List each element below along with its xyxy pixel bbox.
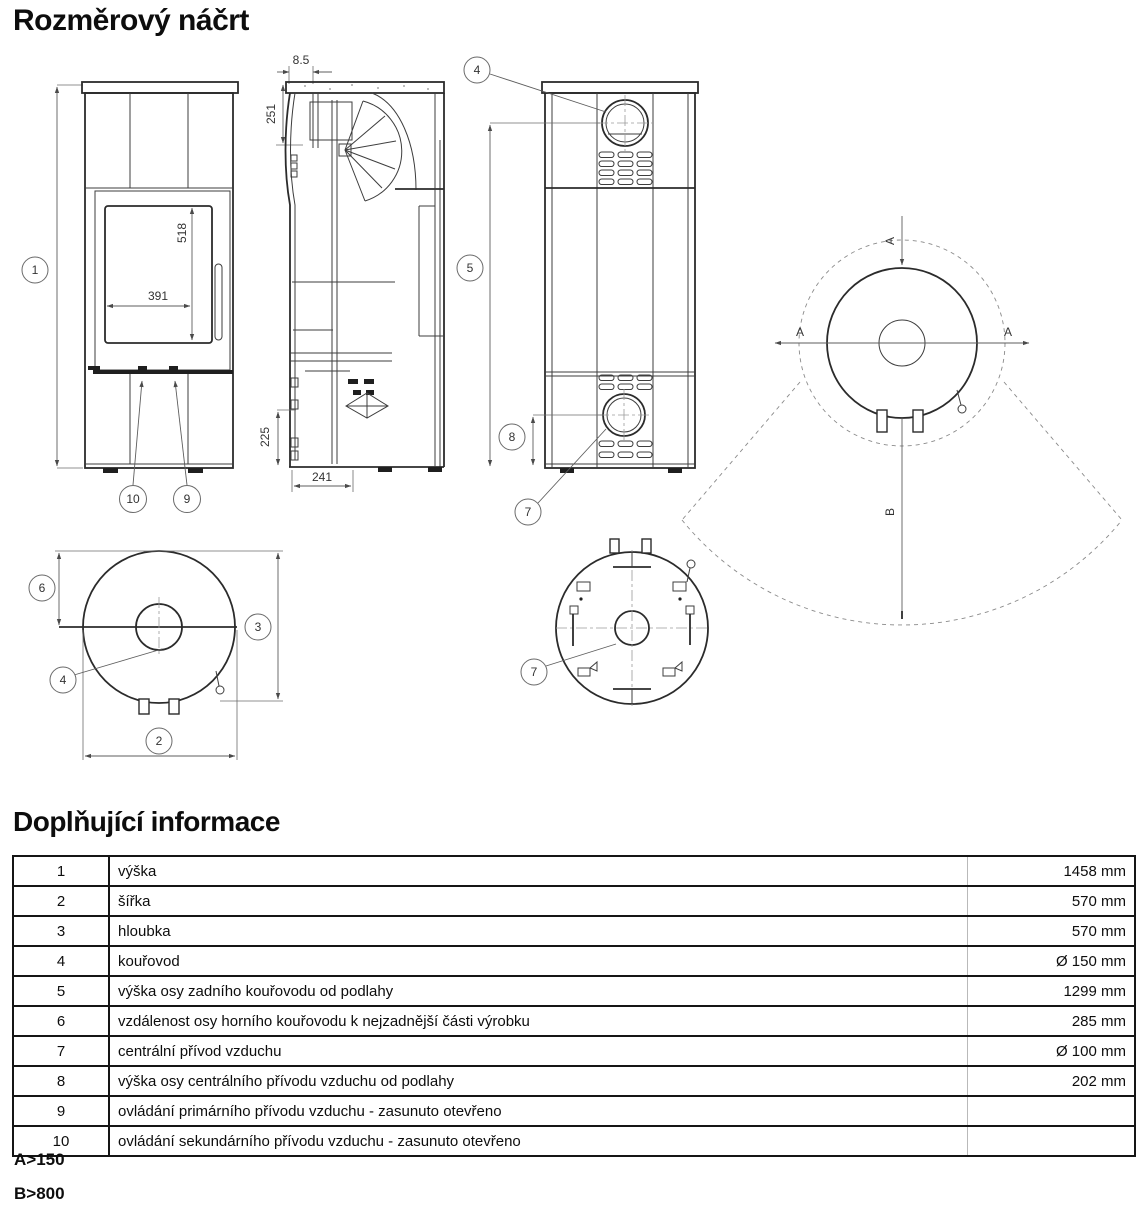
balloon-6: 6 [29, 575, 55, 601]
row-label-cell: výška [109, 856, 968, 886]
table-row: 1 výška 1458 mm [13, 856, 1135, 886]
balloon-5-label: 5 [467, 261, 474, 275]
balloon-8: 8 [499, 424, 525, 450]
dim-glass-width: 391 [148, 289, 168, 303]
row-number-cell: 9 [13, 1096, 109, 1126]
row-value-cell: Ø 150 mm [968, 946, 1136, 976]
row-value-cell: 1458 mm [968, 856, 1136, 886]
row-value-cell: 570 mm [968, 916, 1136, 946]
balloon-4-label: 4 [474, 63, 481, 77]
dim-plate-offset: 8.5 [293, 53, 310, 67]
door-handle-top [958, 405, 966, 413]
info-heading: Doplňující informace [13, 806, 280, 838]
info-table: 1 výška 1458 mm 2 šířka 570 mm 3 hloubka… [12, 855, 1136, 1157]
table-row: 4 kouřovod Ø 150 mm [13, 946, 1135, 976]
row-label-cell: výška osy zadního kouřovodu od podlahy [109, 976, 968, 1006]
row-number-cell: 1 [13, 856, 109, 886]
table-row: 8 výška osy centrálního přívodu vzduchu … [13, 1066, 1135, 1096]
stove-foot [913, 410, 923, 432]
table-row: 5 výška osy zadního kouřovodu od podlahy… [13, 976, 1135, 1006]
top-view: 6 3 2 4 [29, 551, 283, 760]
row-label-cell: ovládání sekundárního přívodu vzduchu - … [109, 1126, 968, 1156]
door-handle-top [216, 686, 224, 694]
rear-vent-grid-bottom [599, 441, 652, 458]
row-number-cell: 2 [13, 886, 109, 916]
balloon-1-label: 1 [32, 263, 39, 277]
row-value-cell: Ø 100 mm [968, 1036, 1136, 1066]
balloon-10: 10 [120, 486, 147, 513]
row-value-cell [968, 1096, 1136, 1126]
row-label-cell: kouřovod [109, 946, 968, 976]
rear-vent-grid-top [599, 152, 652, 185]
clearance-a-left: A [796, 325, 804, 339]
central-air-inlet [598, 389, 650, 441]
door-handle-bottom [687, 560, 695, 568]
table-row: 2 šířka 570 mm [13, 886, 1135, 916]
table-row: 6 vzdálenost osy horního kouřovodu k nej… [13, 1006, 1135, 1036]
balloon-7-bottom-view: 7 [521, 659, 547, 685]
stove-foot [877, 410, 887, 432]
door-glass [105, 206, 212, 343]
dimensional-drawing: 1 518 391 [0, 0, 1147, 800]
bottom-view: 7 [521, 539, 708, 706]
table-row: 7 centrální přívod vzduchu Ø 100 mm [13, 1036, 1135, 1066]
clearance-a-right: A [1004, 325, 1012, 339]
clearance-a-top: A [883, 237, 897, 245]
note-clearance-b: B>800 [14, 1184, 65, 1204]
balloon-4-label: 4 [60, 673, 67, 687]
row-value-cell: 1299 mm [968, 976, 1136, 1006]
note-clearance-a: A>150 [14, 1150, 65, 1170]
balloon-3: 3 [245, 614, 271, 640]
balloon-6-label: 6 [39, 581, 46, 595]
row-number-cell: 6 [13, 1006, 109, 1036]
row-number-cell: 5 [13, 976, 109, 1006]
row-value-cell: 202 mm [968, 1066, 1136, 1096]
balloon-10-label: 10 [126, 492, 140, 506]
balloon-1: 1 [22, 257, 48, 283]
row-number-cell: 4 [13, 946, 109, 976]
balloon-5: 5 [457, 255, 483, 281]
table-row: 10 ovládání sekundárního přívodu vzduchu… [13, 1126, 1135, 1156]
balloon-4-top-view: 4 [50, 667, 76, 693]
balloon-4: 4 [464, 57, 490, 83]
balloon-7-label: 7 [525, 505, 532, 519]
row-label-cell: vzdálenost osy horního kouřovodu k nejza… [109, 1006, 968, 1036]
balloon-8-label: 8 [509, 430, 516, 444]
row-label-cell: výška osy centrálního přívodu vzduchu od… [109, 1066, 968, 1096]
clearance-diagram: A A A B [682, 216, 1122, 625]
balloon-7: 7 [515, 499, 541, 525]
balloon-9-label: 9 [184, 492, 191, 506]
rear-vent-grid-middle [599, 375, 652, 390]
flue-outlet [597, 95, 653, 151]
side-section-view: 8.5 251 [258, 53, 444, 492]
table-row: 3 hloubka 570 mm [13, 916, 1135, 946]
dim-glass-height: 518 [175, 223, 189, 243]
stove-foot [139, 699, 149, 714]
dim-flue-depth: 251 [264, 104, 278, 124]
balloon-2: 2 [146, 728, 172, 754]
row-label-cell: ovládání primárního přívodu vzduchu - za… [109, 1096, 968, 1126]
clearance-b-front: B [883, 508, 897, 516]
row-label-cell: hloubka [109, 916, 968, 946]
row-value-cell: 570 mm [968, 886, 1136, 916]
balloon-2-label: 2 [156, 734, 163, 748]
balloon-3-label: 3 [255, 620, 262, 634]
row-value-cell: 285 mm [968, 1006, 1136, 1036]
row-label-cell: šířka [109, 886, 968, 916]
dim-inlet-height: 225 [258, 427, 272, 447]
door-handle [215, 264, 222, 340]
dim-inlet-depth: 241 [312, 470, 332, 484]
rear-view: 4 5 [457, 57, 698, 525]
row-value-cell [968, 1126, 1136, 1156]
row-label-cell: centrální přívod vzduchu [109, 1036, 968, 1066]
row-number-cell: 7 [13, 1036, 109, 1066]
balloon-7-label: 7 [531, 665, 538, 679]
row-number-cell: 3 [13, 916, 109, 946]
stove-foot [169, 699, 179, 714]
page: Rozměrový náčrt 1 [0, 0, 1147, 1224]
balloon-9: 9 [174, 486, 201, 513]
row-number-cell: 8 [13, 1066, 109, 1096]
front-view: 1 518 391 [22, 82, 238, 513]
stove-foot [610, 539, 619, 553]
table-row: 9 ovládání primárního přívodu vzduchu - … [13, 1096, 1135, 1126]
stove-foot [642, 539, 651, 553]
